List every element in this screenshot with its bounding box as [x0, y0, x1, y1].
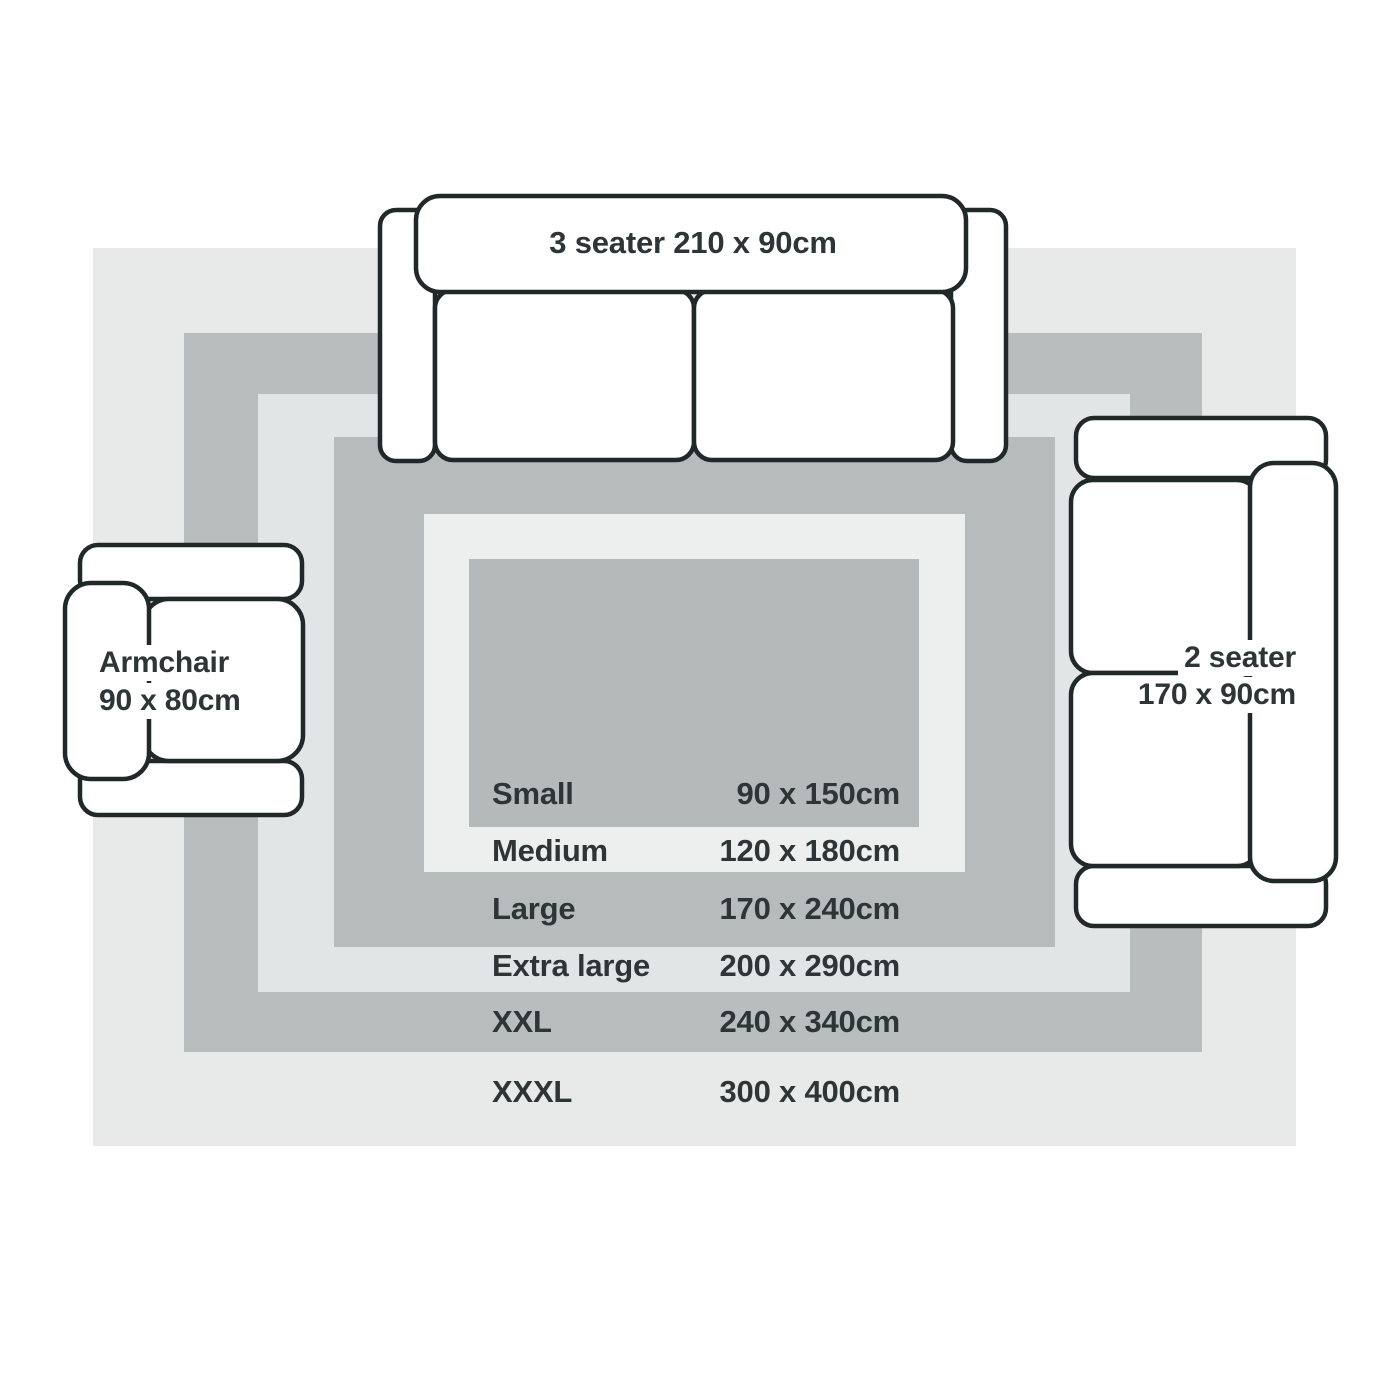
size-table-row-xxl: XXL 240 x 340cm: [492, 1003, 900, 1041]
rug-size-value: 90 x 150cm: [737, 775, 900, 813]
armchair-backrest-shape: [65, 583, 149, 779]
rug-size-label: XXL: [492, 1003, 552, 1041]
rug-size-value: 200 x 290cm: [719, 947, 900, 985]
sofa-2-seater-label-line1: 2 seater: [1178, 640, 1302, 676]
size-table-row-small: Small 90 x 150cm: [492, 775, 900, 813]
sofa-3-seater-label: 3 seater 210 x 90cm: [373, 224, 1013, 262]
rug-size-label: Large: [492, 890, 575, 928]
sofa3-cushion-left-shape: [435, 290, 694, 460]
armchair-label-line1: Armchair: [93, 645, 235, 681]
armchair-label-text1: Armchair: [93, 645, 235, 681]
rug-size-value: 170 x 240cm: [719, 890, 900, 928]
armchair-label-text2: 90 x 80cm: [93, 683, 247, 719]
size-table-row-large: Large 170 x 240cm: [492, 890, 900, 928]
sofa-2-seater-label-line2: 170 x 90cm: [1132, 677, 1302, 713]
rug-size-label: Small: [492, 775, 574, 813]
rug-size-label: XXXL: [492, 1073, 572, 1111]
rug-size-label: Medium: [492, 832, 608, 870]
rug-size-value: 240 x 340cm: [719, 1003, 900, 1041]
sofa3-cushion-right-shape: [694, 290, 953, 460]
rug-size-value: 120 x 180cm: [719, 832, 900, 870]
sofa-2-seater-label-text1: 2 seater: [1178, 640, 1302, 676]
rug-size-guide-diagram: 3 seater 210 x 90cm 2 seater 170 x 90cm …: [0, 0, 1389, 1389]
armchair-label-line2: 90 x 80cm: [93, 683, 247, 719]
size-table-row-extra-large: Extra large 200 x 290cm: [492, 947, 900, 985]
size-table-row-medium: Medium 120 x 180cm: [492, 832, 900, 870]
size-table-row-xxxl: XXXL 300 x 400cm: [492, 1073, 900, 1111]
rug-size-value: 300 x 400cm: [719, 1073, 900, 1111]
sofa-2-seater-label-text2: 170 x 90cm: [1132, 677, 1302, 713]
rug-size-label: Extra large: [492, 947, 650, 985]
sofa-3-seater-label-text: 3 seater 210 x 90cm: [549, 225, 837, 260]
